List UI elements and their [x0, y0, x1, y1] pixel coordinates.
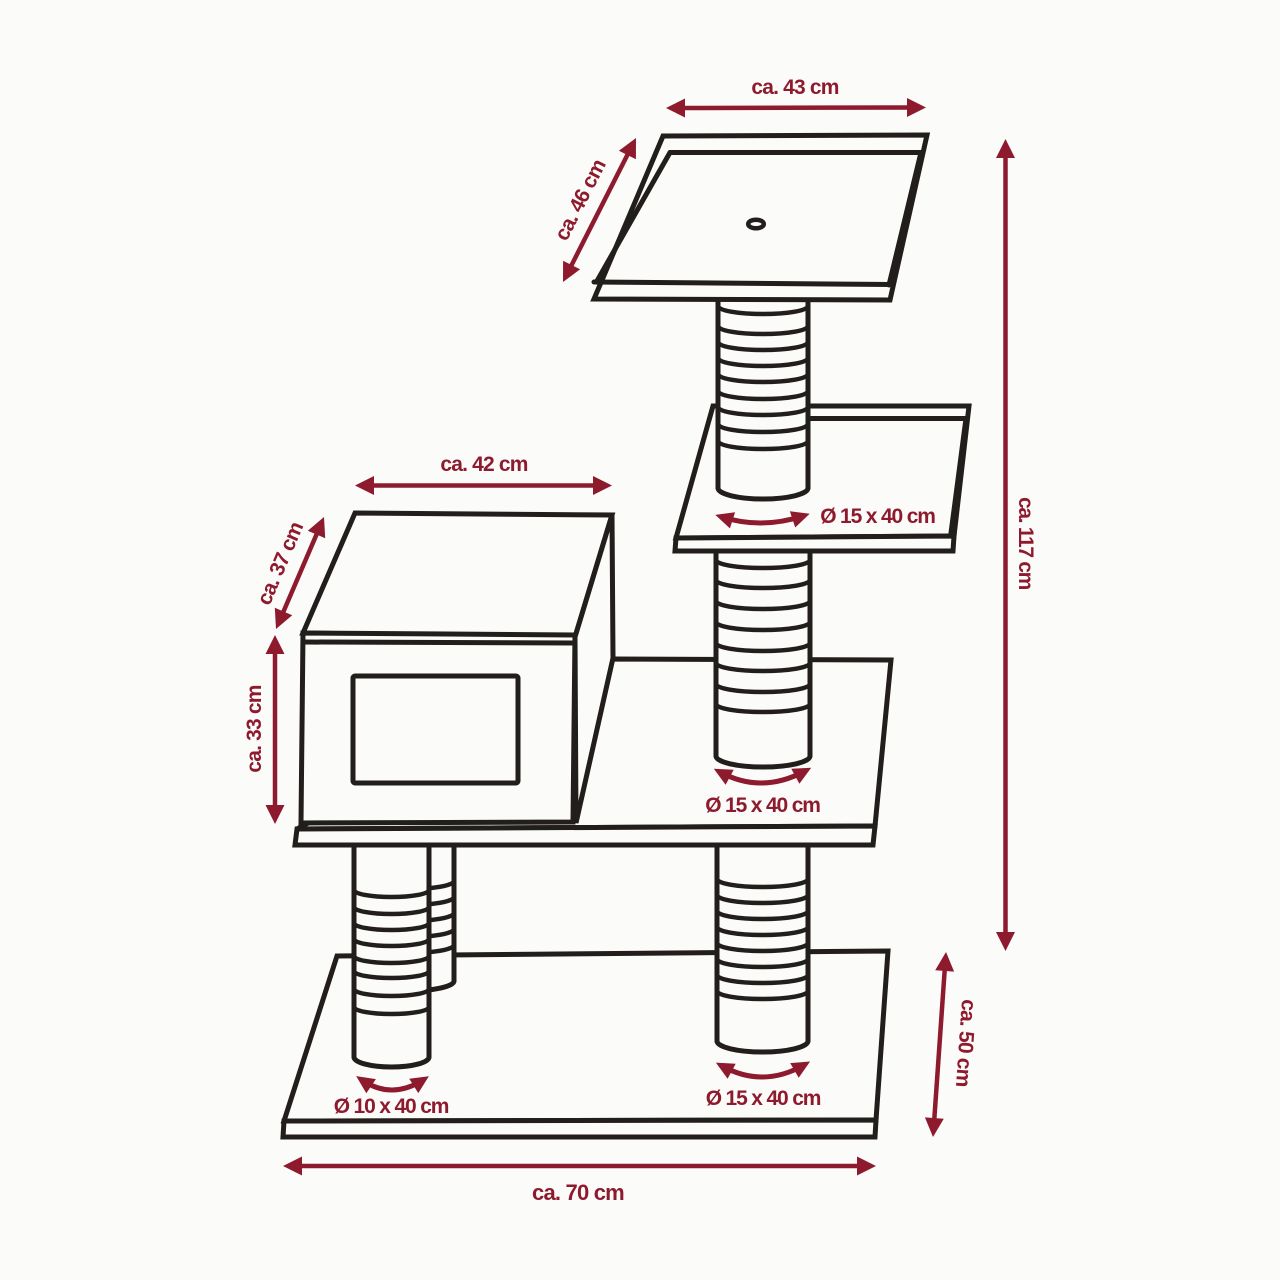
svg-text:ca. 46 cm: ca. 46 cm [550, 156, 610, 244]
svg-text:Ø 10 x 40 cm: Ø 10 x 40 cm [334, 1095, 449, 1118]
svg-text:ca. 117 cm: ca. 117 cm [1014, 497, 1037, 590]
svg-text:ca. 70 cm: ca. 70 cm [532, 1180, 624, 1205]
svg-text:ca. 42 cm: ca. 42 cm [440, 453, 527, 476]
svg-text:Ø 15 x 40 cm: Ø 15 x 40 cm [705, 794, 820, 817]
svg-text:ca. 37 cm: ca. 37 cm [253, 519, 308, 609]
svg-text:Ø 15 x 40 cm: Ø 15 x 40 cm [706, 1087, 821, 1110]
svg-text:ca. 43 cm: ca. 43 cm [751, 76, 838, 99]
svg-text:Ø 15 x 40 cm: Ø 15 x 40 cm [820, 505, 935, 528]
svg-text:ca. 50 cm: ca. 50 cm [951, 999, 980, 1088]
svg-text:ca. 33 cm: ca. 33 cm [243, 685, 266, 772]
